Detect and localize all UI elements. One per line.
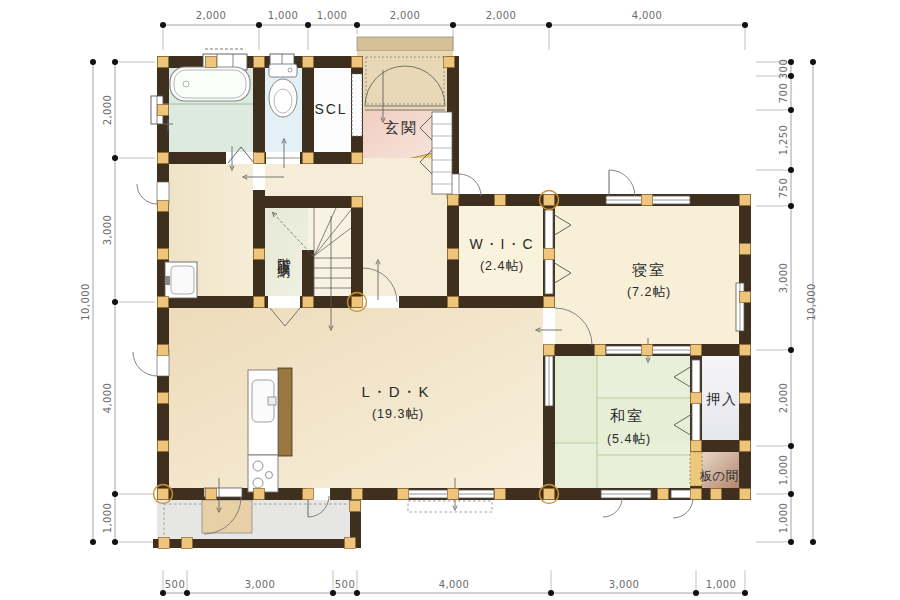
dim-bottom-4: 4,000: [439, 579, 470, 590]
room-size-washitsu: (5.4帖): [607, 431, 651, 448]
kitchen-unit: [248, 370, 278, 492]
dim-bottom-5: 3,000: [609, 579, 640, 590]
dim-left-1: 2,000: [102, 95, 113, 126]
dim-bottom-1: 500: [165, 579, 185, 590]
dim-left-4: 1,000: [102, 503, 113, 534]
room-size-wic: (2.4帖): [480, 258, 524, 275]
dim-bottom-2: 3,000: [245, 579, 276, 590]
dim-top-1: 2,000: [196, 10, 227, 21]
dim-left-total: 10,000: [80, 283, 91, 320]
room-label-bedroom: 寝室: [632, 261, 666, 280]
floor-plan-canvas: SCL 玄関 階段下収納 W・I・C (2.4帖) 寝室 (7.2帖) L・D・…: [0, 0, 900, 600]
room-label-genkan: 玄関: [384, 119, 418, 138]
room-label-ldk: L・D・K: [361, 383, 430, 402]
dim-left-3: 4,000: [102, 383, 113, 414]
dim-top-5: 2,000: [486, 10, 517, 21]
dim-right-2: 700: [778, 83, 789, 103]
ldk-floor: [163, 302, 549, 494]
dim-right-8: 1,000: [778, 503, 789, 534]
washbasin: [165, 262, 197, 298]
dim-top-4: 2,000: [390, 10, 421, 21]
room-size-ldk: (19.3帖): [372, 406, 424, 423]
entrance-canopy: [357, 37, 453, 51]
floor-plan-drawing: [0, 0, 900, 600]
dim-right-total: 10,000: [806, 283, 817, 320]
dim-right-5: 3,000: [778, 263, 789, 294]
dim-bottom-3: 500: [335, 579, 355, 590]
dim-right-7: 1,000: [778, 455, 789, 486]
room-label-oshiire: 押入: [706, 391, 738, 409]
room-label-washitsu: 和室: [610, 407, 644, 426]
kitchen-stove: [248, 455, 278, 492]
room-label-scl: SCL: [314, 101, 347, 117]
dim-left-2: 3,000: [102, 215, 113, 246]
room-size-bedroom: (7.2帖): [627, 284, 671, 301]
dim-top-3: 1,000: [317, 10, 348, 21]
toilet-fixture: [269, 64, 297, 117]
dim-right-4: 750: [778, 178, 789, 198]
room-label-wic: W・I・C: [469, 236, 534, 254]
deck-step: [202, 500, 252, 533]
dim-right-3: 1,250: [778, 125, 789, 156]
room-label-itanoma: 板の間: [700, 468, 738, 485]
dim-top-2: 1,000: [268, 10, 299, 21]
kitchen-half-wall: [278, 368, 292, 456]
dim-bottom-6: 1,000: [706, 579, 737, 590]
room-label-stair-storage: 階段下収納: [276, 247, 290, 257]
entrance-porch: [357, 51, 453, 110]
dim-right-1: 300: [778, 59, 789, 79]
dim-right-6: 2,000: [778, 383, 789, 414]
dim-top-6: 4,000: [632, 10, 663, 21]
